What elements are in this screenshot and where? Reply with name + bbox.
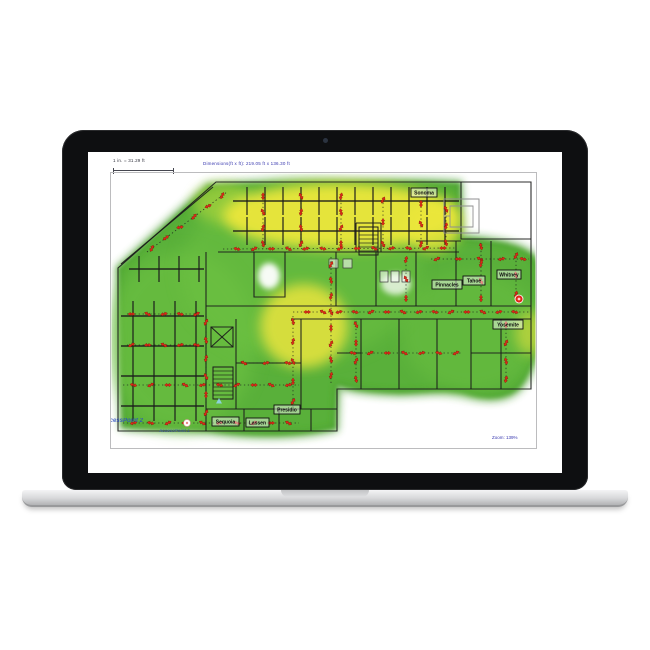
svg-text:Pinnacles: Pinnacles bbox=[435, 283, 459, 289]
scale-label: 1 in. = 31.29 ft bbox=[113, 158, 145, 163]
svg-text:Sequoia: Sequoia bbox=[216, 420, 236, 426]
svg-text:Tahoe: Tahoe bbox=[467, 279, 482, 285]
floorplan-canvas[interactable]: SonomaPinnaclesTahoeWhitneyYosemitePresi… bbox=[110, 172, 537, 449]
laptop-mockup: 1 in. = 31.29 ft Dimensions(ft x ft): 21… bbox=[0, 0, 650, 650]
webcam-icon bbox=[323, 138, 328, 143]
laptop-screen-bezel: 1 in. = 31.29 ft Dimensions(ft x ft): 21… bbox=[62, 130, 588, 490]
zoom-level-label: Zoom: 139% bbox=[492, 435, 518, 440]
svg-text:Lassen: Lassen bbox=[249, 421, 266, 427]
svg-text:Presidio: Presidio bbox=[277, 408, 297, 414]
svg-text:Whitney: Whitney bbox=[499, 273, 519, 279]
dimensions-label: Dimensions(ft x ft): 219.05 ft x 136.30 … bbox=[203, 161, 290, 166]
app-window: 1 in. = 31.29 ft Dimensions(ft x ft): 21… bbox=[88, 152, 562, 473]
svg-text:AccessPoint 1: AccessPoint 1 bbox=[158, 428, 190, 433]
svg-text:Sonoma: Sonoma bbox=[414, 191, 434, 197]
laptop-lid-notch bbox=[281, 490, 369, 497]
svg-text:Yosemite: Yosemite bbox=[497, 323, 519, 329]
svg-text:AccessPoint 2: AccessPoint 2 bbox=[111, 418, 144, 424]
laptop-base bbox=[22, 490, 628, 507]
